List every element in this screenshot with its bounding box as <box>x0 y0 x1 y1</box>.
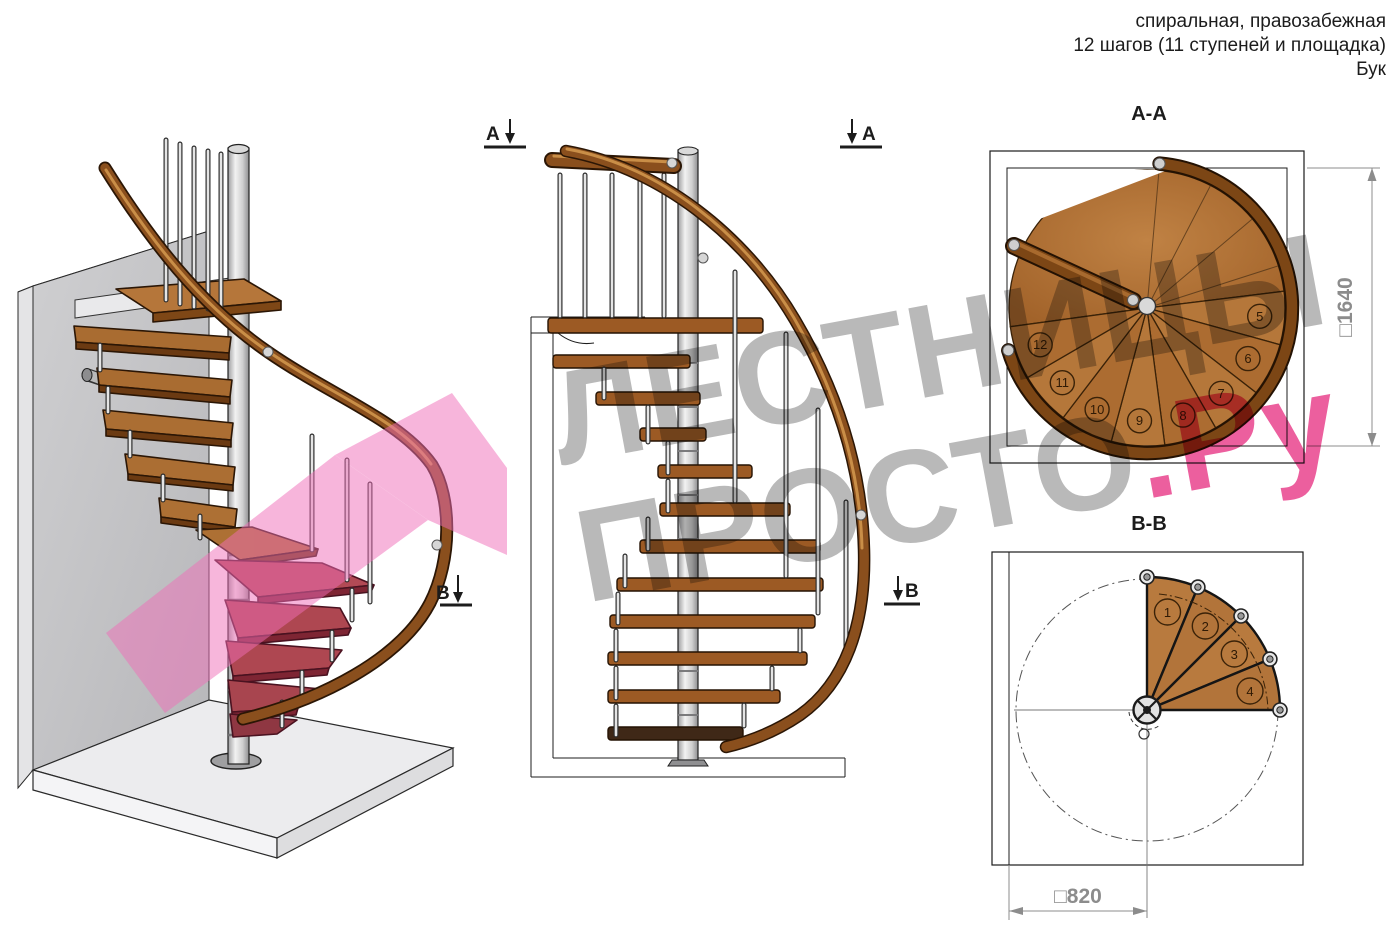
svg-text:5: 5 <box>1256 309 1263 324</box>
section-marker-a-right: А <box>840 119 882 147</box>
drawing-canvas: В <box>0 0 1400 939</box>
svg-text:А: А <box>862 124 876 145</box>
svg-text:2: 2 <box>1202 619 1209 634</box>
plan-aa-title: А-А <box>1131 103 1167 125</box>
wall-side-strip <box>18 286 33 788</box>
svg-text:7: 7 <box>1217 386 1224 401</box>
svg-text:6: 6 <box>1244 351 1251 366</box>
staircase-drawing: В <box>0 0 1400 939</box>
elevation-view: А А В <box>484 119 920 777</box>
plan-aa-pole-top <box>1139 298 1156 315</box>
plan-aa-dimension: □1640 <box>1307 168 1380 446</box>
plan-view-bb: В-В <box>992 513 1303 920</box>
svg-text:□820: □820 <box>1054 885 1102 908</box>
section-marker-b-elevation: В <box>884 576 920 604</box>
center-pole-elevation <box>668 147 708 766</box>
svg-text:11: 11 <box>1056 375 1070 390</box>
svg-text:12: 12 <box>1033 337 1047 352</box>
svg-text:10: 10 <box>1090 402 1104 417</box>
three-d-view: В <box>18 140 507 858</box>
plan-bb-steps <box>1147 577 1280 710</box>
plan-view-aa: А-А <box>990 103 1380 463</box>
title-line-material: Бук <box>1073 58 1386 82</box>
section-marker-a-left: А <box>484 119 526 147</box>
plan-bb-title: В-В <box>1131 513 1167 535</box>
title-line-steps: 12 шагов (11 ступеней и площадка) <box>1073 34 1386 58</box>
svg-text:А: А <box>486 124 500 145</box>
plan-bb-dimension: □820 <box>1009 865 1147 920</box>
svg-text:4: 4 <box>1246 684 1253 699</box>
title-block: спиральная, правозабежная 12 шагов (11 с… <box>1073 10 1386 82</box>
plan-bb-hub <box>1129 697 1161 740</box>
svg-text:В: В <box>436 583 450 604</box>
svg-text:□1640: □1640 <box>1334 277 1357 336</box>
svg-text:9: 9 <box>1136 413 1143 428</box>
svg-text:8: 8 <box>1179 408 1186 423</box>
svg-text:3: 3 <box>1231 647 1238 662</box>
title-line-type: спиральная, правозабежная <box>1073 10 1386 34</box>
svg-text:В: В <box>905 581 919 602</box>
svg-text:1: 1 <box>1164 605 1171 620</box>
